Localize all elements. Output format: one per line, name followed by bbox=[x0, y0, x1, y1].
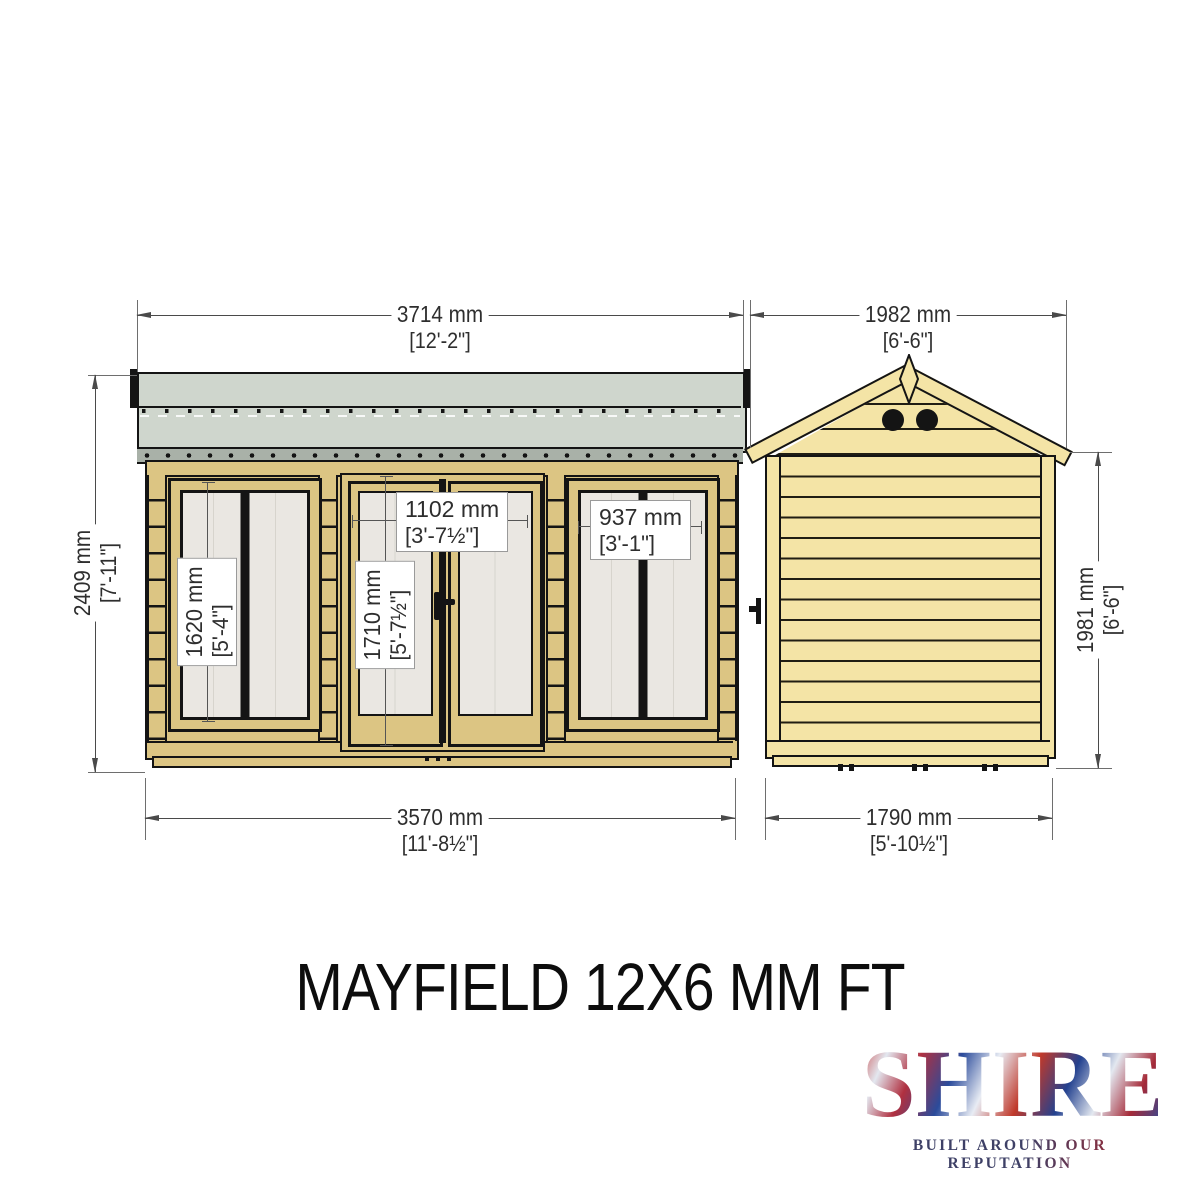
front-roof-felt-dashed-line bbox=[140, 415, 740, 417]
side-bearer-ticks bbox=[982, 764, 998, 771]
front-cladding-strip-left-corner bbox=[147, 475, 167, 741]
side-base-rail bbox=[767, 740, 1050, 755]
door-height-ftin: [5'-7½"] bbox=[386, 569, 411, 660]
gable-vent-right-icon bbox=[916, 409, 938, 431]
door-width-ftin: [3'-7½"] bbox=[405, 523, 499, 548]
label-window-width: 937 mm [3'-1"] bbox=[590, 500, 691, 560]
front-threshold-dots bbox=[425, 757, 455, 761]
side-bearer-ticks bbox=[912, 764, 928, 771]
window-width-ftin: [3'-1"] bbox=[599, 531, 682, 556]
window-width-mm: 937 mm bbox=[599, 504, 682, 531]
dim-side-roof-width: 1982 mm [6'-6"] bbox=[750, 315, 1066, 316]
side-roof-width-ftin: [6'-6"] bbox=[865, 328, 951, 353]
roof-finial-icon bbox=[898, 354, 920, 404]
extension-line bbox=[145, 778, 146, 840]
door-height-mm: 1710 mm bbox=[359, 569, 386, 660]
side-wall-height-ftin: [6'-6"] bbox=[1099, 567, 1124, 653]
gable-vent-left-icon bbox=[882, 409, 904, 431]
door-handle-icon bbox=[434, 592, 440, 620]
label-door-height: 1710 mm [5'-7½"] bbox=[355, 561, 415, 669]
dim-front-overall-width: 3714 mm [12'-2"] bbox=[137, 315, 743, 316]
brand-logo-tagline: BUILT AROUND OUR REPUTATION bbox=[862, 1137, 1158, 1173]
front-roof-joint-line bbox=[139, 406, 741, 408]
brand-logo-wordmark: SHIRE bbox=[862, 1034, 1158, 1135]
extension-line bbox=[1052, 778, 1053, 840]
side-base-width-ftin: [5'-10½"] bbox=[865, 831, 951, 856]
side-roof-width-mm: 1982 mm bbox=[865, 301, 951, 328]
front-overall-width-ftin: [12'-2"] bbox=[397, 328, 483, 353]
extension-line bbox=[1056, 768, 1112, 769]
brand-logo: SHIRE BUILT AROUND OUR REPUTATION bbox=[862, 1034, 1158, 1173]
front-overall-width-mm: 3714 mm bbox=[397, 301, 483, 328]
label-door-opening-width: 1102 mm [3'-7½"] bbox=[396, 492, 508, 552]
window-height-mm: 1620 mm bbox=[181, 566, 208, 657]
side-floor-bearer bbox=[772, 755, 1049, 767]
front-overall-height-ftin: [7'-11"] bbox=[96, 530, 121, 616]
dim-side-base-width: 1790 mm [5'-10½"] bbox=[765, 818, 1052, 819]
extension-line bbox=[1066, 300, 1067, 448]
side-base-width-mm: 1790 mm bbox=[865, 804, 951, 831]
extension-line bbox=[743, 300, 744, 372]
side-door-handle-stub-icon bbox=[749, 606, 758, 612]
front-cladding-strip-right-of-door bbox=[546, 475, 566, 741]
extension-line bbox=[765, 778, 766, 840]
front-left-window-glazing-bar bbox=[241, 493, 250, 717]
extension-line bbox=[1070, 452, 1112, 453]
window-height-ftin: [5'-4"] bbox=[208, 566, 233, 657]
door-handle-lever-icon bbox=[438, 599, 455, 605]
side-wall bbox=[765, 455, 1056, 759]
front-overall-height-mm: 2409 mm bbox=[69, 530, 96, 616]
front-roof-endcap-right bbox=[743, 369, 750, 408]
front-roof-nail-dots bbox=[142, 409, 740, 413]
side-corner-trim-right bbox=[1040, 455, 1056, 759]
product-title: MAYFIELD 12X6 MM FT bbox=[90, 952, 1110, 1024]
extension-line bbox=[137, 300, 138, 372]
extension-line bbox=[750, 300, 751, 448]
label-side-wall-height: 1981 mm [6'-6"] bbox=[1072, 561, 1124, 658]
label-front-overall-height: 2409 mm [7'-11"] bbox=[69, 524, 121, 621]
label-window-height: 1620 mm [5'-4"] bbox=[177, 558, 237, 666]
front-base-width-mm: 3570 mm bbox=[397, 804, 483, 831]
door-width-mm: 1102 mm bbox=[405, 496, 499, 523]
extension-line bbox=[735, 778, 736, 840]
front-base-width-ftin: [11'-8½"] bbox=[397, 831, 483, 856]
side-corner-trim-left bbox=[765, 455, 781, 759]
front-cladding-strip-right-corner bbox=[717, 475, 737, 741]
drawing-canvas: 1102 mm [3'-7½"] 937 mm [3'-1"] 1620 mm … bbox=[0, 0, 1200, 1200]
side-wall-height-mm: 1981 mm bbox=[1072, 567, 1099, 653]
dim-front-base-width: 3570 mm [11'-8½"] bbox=[145, 818, 735, 819]
side-bearer-ticks bbox=[838, 764, 854, 771]
